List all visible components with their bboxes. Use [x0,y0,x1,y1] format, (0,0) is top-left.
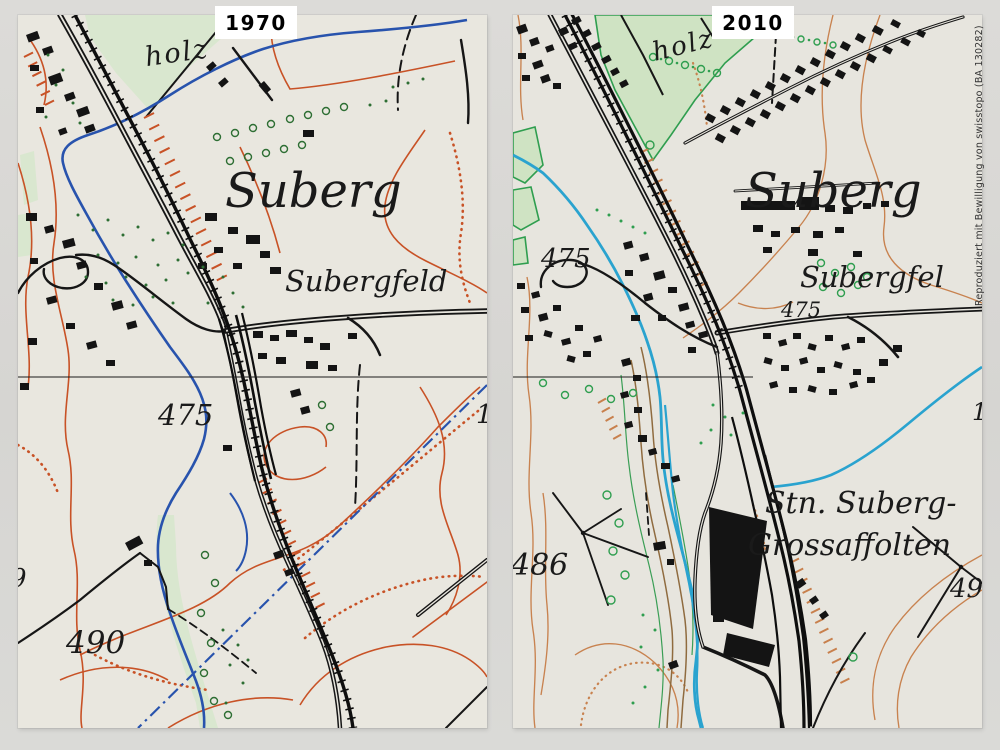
forest-areas-2010 [513,15,775,265]
map-2010-canvas: holz Suberg Subergfel 475 475 Stn. Suber… [513,15,982,728]
orchard-trees-2010 [540,32,871,661]
railway-2010 [565,15,811,728]
label-suberg-1970: Suberg [225,163,402,219]
year-label-1970: 1970 [215,6,297,39]
label-partial-1-1970: 1 [476,400,487,430]
map-panel-2010: holz Suberg Subergfel 475 475 Stn. Suber… [513,15,982,728]
label-486-2010: 486 [513,548,568,583]
label-station-line1-2010: Stn. Suberg- [765,486,957,521]
boundary-dashdot-line [138,385,487,728]
label-suberg-2010: Suberg [745,163,922,219]
contour-lines-1970 [18,15,487,728]
roads-2010 [541,15,982,728]
year-label-2010: 2010 [712,6,794,39]
label-subergfel-2010: Subergfel [800,260,944,294]
streams-1970 [62,20,487,728]
dotted-paths-2010 [581,63,765,725]
label-475-1970: 475 [157,398,213,432]
label-475-lower-2010: 475 [780,298,821,322]
map-1970-canvas: holz Suberg Subergfeld 475 490 9 1 [18,15,487,728]
label-49-partial-2010: 49 [949,574,982,604]
roads-1970 [18,15,487,728]
label-475-upper-2010: 475 [540,244,591,274]
label-partial-9-1970: 9 [18,564,27,594]
label-partial-1-2010: 1 [972,398,982,426]
map-panel-1970: holz Suberg Subergfeld 475 490 9 1 [18,15,487,728]
label-station-line2-2010: Grossaffolten [748,528,951,563]
swisstopo-attribution: Reproduziert mit Bewilligung von swissto… [974,38,985,306]
label-490-1970: 490 [65,625,125,661]
label-subergfeld-1970: Subergfeld [285,264,447,298]
